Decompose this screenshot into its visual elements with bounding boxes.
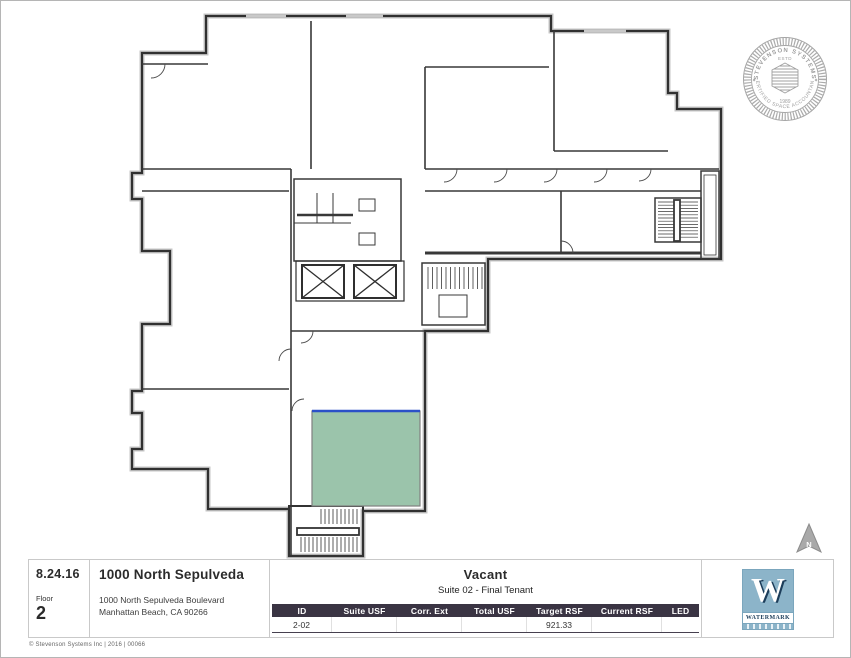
title-block: 8.24.16 Floor 2 1000 North Sepulveda 100… xyxy=(28,559,834,638)
col-total-usf: Total USF xyxy=(462,606,527,616)
floor-label: Floor xyxy=(36,594,89,603)
floor-plan: STEVENSON SYSTEMS CERTIFIED SPACE ACCOUN… xyxy=(1,1,851,559)
seal-hex-hatch xyxy=(770,66,800,90)
suite-table-row[interactable]: 2-02 921.33 xyxy=(272,617,699,633)
watermark-letter: W xyxy=(751,574,785,608)
north-arrow-label: N xyxy=(806,540,811,549)
watermark-tagline-band xyxy=(742,624,794,630)
floor-number: 2 xyxy=(36,604,89,622)
cell-id: 2-02 xyxy=(272,617,332,632)
building-name: 1000 North Sepulveda xyxy=(99,567,269,582)
col-id: ID xyxy=(272,606,332,616)
date-floor-section: 8.24.16 Floor 2 xyxy=(29,560,90,637)
col-led: LED xyxy=(662,606,699,616)
cell-target-rsf: 921.33 xyxy=(527,617,592,632)
cell-led xyxy=(662,617,699,632)
north-arrow-icon: N xyxy=(797,524,821,552)
seal-star-left-icon: ✦ xyxy=(752,77,757,84)
suite-table: ID Suite USF Corr. Ext Total USF Target … xyxy=(272,604,699,633)
building-address-line1: 1000 North Sepulveda Boulevard xyxy=(99,594,269,606)
tenant-section: Vacant Suite 02 - Final Tenant ID Suite … xyxy=(270,560,702,637)
seal-year-text: 1989 xyxy=(779,99,790,105)
tenant-subtitle: Suite 02 - Final Tenant xyxy=(270,585,701,596)
watermark-logo: W WATERMARK xyxy=(742,569,794,631)
building-address-line2: Manhattan Beach, CA 90266 xyxy=(99,606,269,618)
floor-plan-svg: STEVENSON SYSTEMS CERTIFIED SPACE ACCOUN… xyxy=(1,1,851,559)
exterior-walls xyxy=(132,16,721,556)
tenant-status: Vacant xyxy=(270,567,701,582)
col-target-rsf: Target RSF xyxy=(527,606,592,616)
suite-2-02-region[interactable] xyxy=(312,411,420,506)
plan-sheet: STEVENSON SYSTEMS CERTIFIED SPACE ACCOUN… xyxy=(0,0,851,658)
logo-section: W WATERMARK xyxy=(702,560,834,637)
sheet-date: 8.24.16 xyxy=(36,567,89,581)
seal-star-right-icon: ✦ xyxy=(814,77,819,84)
col-suite-usf: Suite USF xyxy=(332,606,397,616)
watermark-logo-icon: W xyxy=(742,569,794,613)
col-corr-ext: Corr. Ext xyxy=(397,606,462,616)
seal-estd-text: ESTD xyxy=(778,56,792,61)
cell-current-rsf xyxy=(592,617,662,632)
cell-corr-ext xyxy=(397,617,462,632)
cell-total-usf xyxy=(462,617,527,632)
watermark-name: WATERMARK xyxy=(746,615,790,621)
building-section: 1000 North Sepulveda 1000 North Sepulved… xyxy=(90,560,270,637)
cell-suite-usf xyxy=(332,617,397,632)
suite-table-header: ID Suite USF Corr. Ext Total USF Target … xyxy=(272,604,699,617)
col-current-rsf: Current RSF xyxy=(592,606,662,616)
suite-2-02-fill[interactable] xyxy=(312,411,420,506)
copyright-text: © Stevenson Systems Inc | 2016 | 00066 xyxy=(29,642,145,648)
